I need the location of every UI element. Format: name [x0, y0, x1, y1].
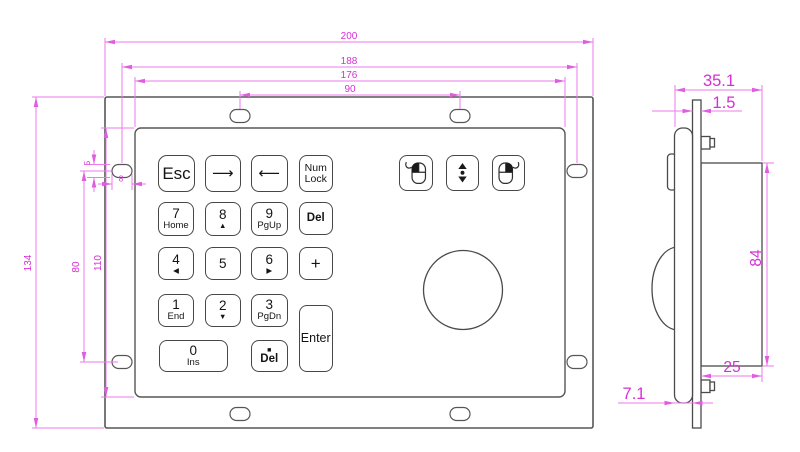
key-sublabel: PgUp [257, 221, 281, 231]
dim-case-depth: 25 [723, 359, 740, 376]
key-4-left: 4 ◀ [158, 247, 194, 280]
dim-total-width: 200 [341, 31, 358, 42]
up-triangle-icon: ▲ [219, 222, 226, 230]
key-label: 3 [265, 298, 273, 312]
key-label: 4 [172, 253, 180, 267]
dim-case-height: 84 [748, 249, 765, 267]
dim-slot-width: 8 [119, 175, 124, 184]
key-label: 8 [219, 208, 227, 222]
dim-total-depth: 35.1 [703, 72, 735, 90]
key-label: Enter [301, 332, 331, 345]
down-triangle-icon: ▼ [219, 313, 226, 321]
left-click-mouse-icon [400, 156, 432, 190]
key-label: Del [307, 213, 325, 225]
key-label: 1 [172, 298, 180, 312]
key-arrow-right: ⟶ [205, 155, 242, 192]
key-sublabel: Home [163, 221, 188, 231]
key-sublabel: Ins [187, 358, 200, 368]
key-num-lock: Num Lock [299, 155, 333, 192]
side-mounting-panel [693, 100, 702, 428]
key-6-right: 6 ▶ [251, 247, 288, 280]
key-plus: + [299, 247, 333, 280]
side-view-drawing [652, 100, 762, 428]
key-label: 6 [265, 253, 273, 267]
key-label: Esc [162, 165, 190, 182]
scroll-wheel-icon [447, 156, 478, 190]
key-arrow-left: ⟵ [251, 155, 288, 192]
dim-panel-thickness: 1.5 [713, 94, 736, 112]
dim-side-hole-span: 80 [71, 261, 82, 273]
key-sublabel: PgDn [257, 312, 281, 322]
key-5: 5 [205, 247, 242, 280]
key-9-pgup: 9 PgUp [251, 202, 288, 236]
dim-slot-height: 5 [83, 160, 92, 165]
dim-bezel-height: 110 [93, 255, 104, 271]
key-label: 0 [189, 344, 197, 358]
key-3-pgdn: 3 PgDn [251, 294, 288, 327]
key-sublabel: End [168, 312, 185, 322]
key-label: Num [305, 163, 327, 174]
side-screw-bottom [701, 380, 715, 393]
key-label: 2 [219, 299, 227, 313]
key-0-ins: 0 Ins [159, 340, 228, 372]
key-sublabel: Del [260, 354, 278, 366]
technical-drawing-canvas: 200 188 176 90 134 110 80 5 8 35.1 1.5 8… [0, 0, 800, 452]
dim-bezel-width: 176 [341, 70, 358, 81]
key-del-square: ■ Del [251, 340, 288, 372]
key-2-down: 2 ▼ [205, 294, 242, 327]
key-label: 5 [219, 257, 227, 271]
dim-hole-span-width: 188 [341, 56, 358, 67]
key-mouse-left-click [399, 155, 433, 191]
key-label: 7 [172, 207, 180, 221]
key-8-up: 8 ▲ [205, 202, 242, 236]
key-7-home: 7 Home [158, 202, 194, 236]
trackball [424, 251, 503, 330]
left-triangle-icon: ◀ [173, 267, 179, 275]
key-label: + [311, 255, 321, 272]
right-triangle-icon: ▶ [266, 267, 272, 275]
right-click-mouse-icon [493, 156, 525, 190]
drawing-lineart: 200 188 176 90 134 110 80 5 8 35.1 1.5 8… [0, 0, 800, 452]
key-scroll [446, 155, 479, 191]
dim-top-hole-span: 90 [344, 84, 356, 95]
dim-bezel-thickness: 7.1 [623, 385, 646, 403]
key-mouse-right-click [492, 155, 526, 191]
dim-total-height: 134 [23, 254, 34, 271]
side-screw-top [701, 137, 715, 150]
key-del: Del [299, 202, 333, 235]
key-label: 9 [265, 207, 273, 221]
arrow-right-icon: ⟶ [212, 166, 234, 181]
key-enter: Enter [299, 305, 333, 372]
key-1-end: 1 End [158, 294, 194, 327]
key-esc: Esc [158, 155, 195, 192]
side-bezel [675, 128, 693, 403]
key-sublabel: Lock [305, 174, 327, 185]
arrow-left-icon: ⟵ [258, 166, 280, 181]
